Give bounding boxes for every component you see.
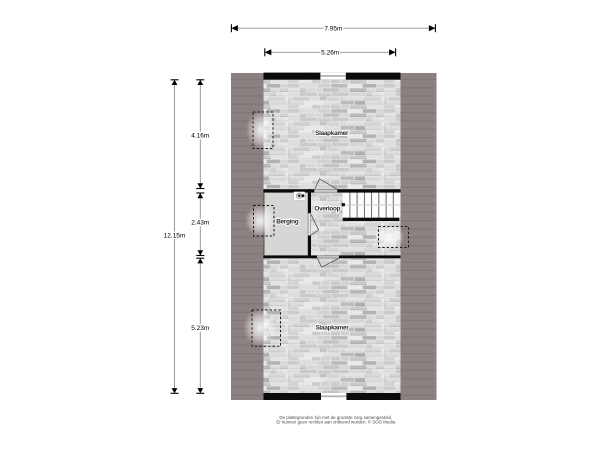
svg-text:Slaapkamer: Slaapkamer [315,130,349,137]
svg-text:7.95m: 7.95m [324,25,342,32]
svg-text:Slaapkamer: Slaapkamer [315,325,349,332]
svg-text:Er kunnen geen rechten aan ont: Er kunnen geen rechten aan ontleend word… [276,420,395,425]
svg-text:Overloop: Overloop [314,206,340,213]
svg-text:4.16m: 4.16m [191,133,209,140]
svg-text:Berging: Berging [276,219,299,226]
svg-text:12.15m: 12.15m [164,232,186,239]
svg-text:5.23m: 5.23m [191,325,209,332]
svg-text:2.43m: 2.43m [191,220,209,227]
svg-text:5.26m: 5.26m [321,50,339,57]
